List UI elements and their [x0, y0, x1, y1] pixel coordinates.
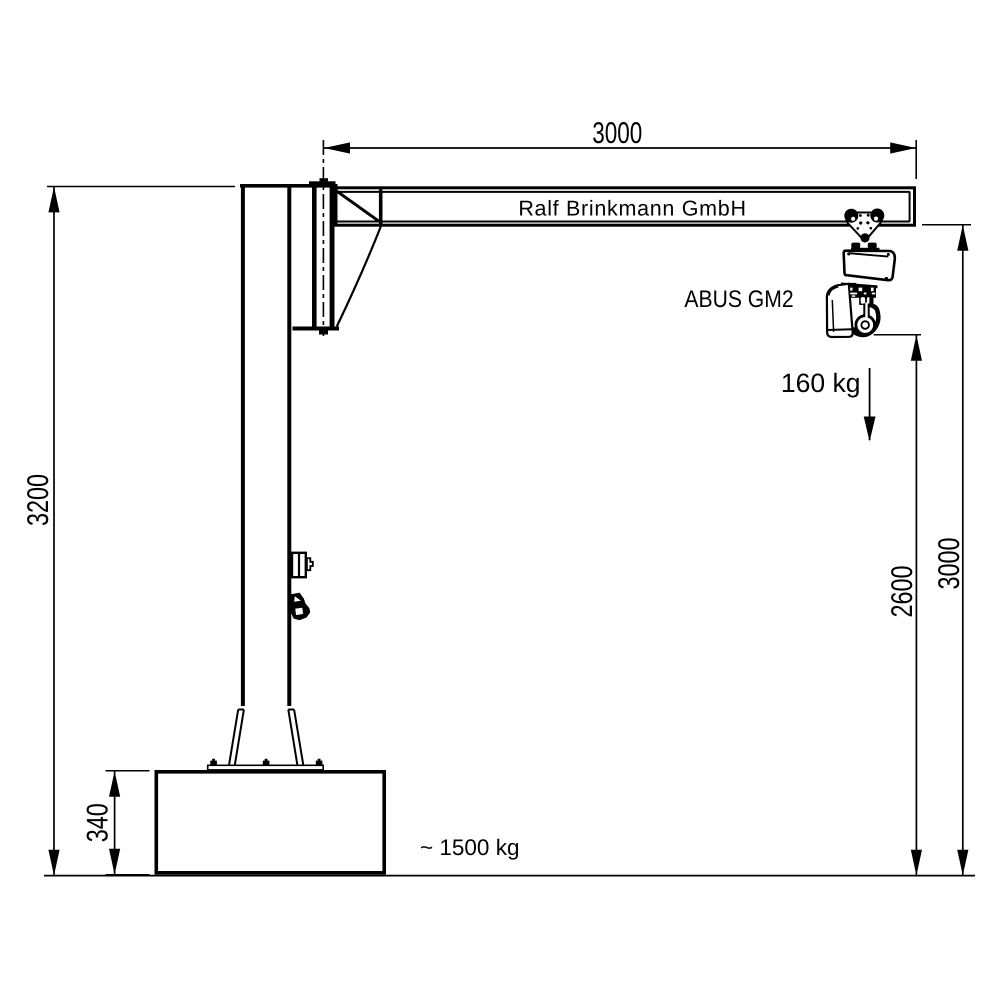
- svg-text:3200: 3200: [22, 474, 55, 526]
- svg-text:ABUS GM2: ABUS GM2: [684, 286, 793, 313]
- svg-text:160 kg: 160 kg: [781, 368, 861, 398]
- svg-text:Ralf Brinkmann GmbH: Ralf Brinkmann GmbH: [518, 196, 746, 220]
- svg-text:340: 340: [82, 803, 115, 842]
- svg-text:~ 1500 kg: ~ 1500 kg: [420, 835, 519, 860]
- svg-text:3000: 3000: [592, 117, 642, 150]
- svg-text:2600: 2600: [886, 565, 919, 617]
- svg-text:3000: 3000: [933, 537, 966, 589]
